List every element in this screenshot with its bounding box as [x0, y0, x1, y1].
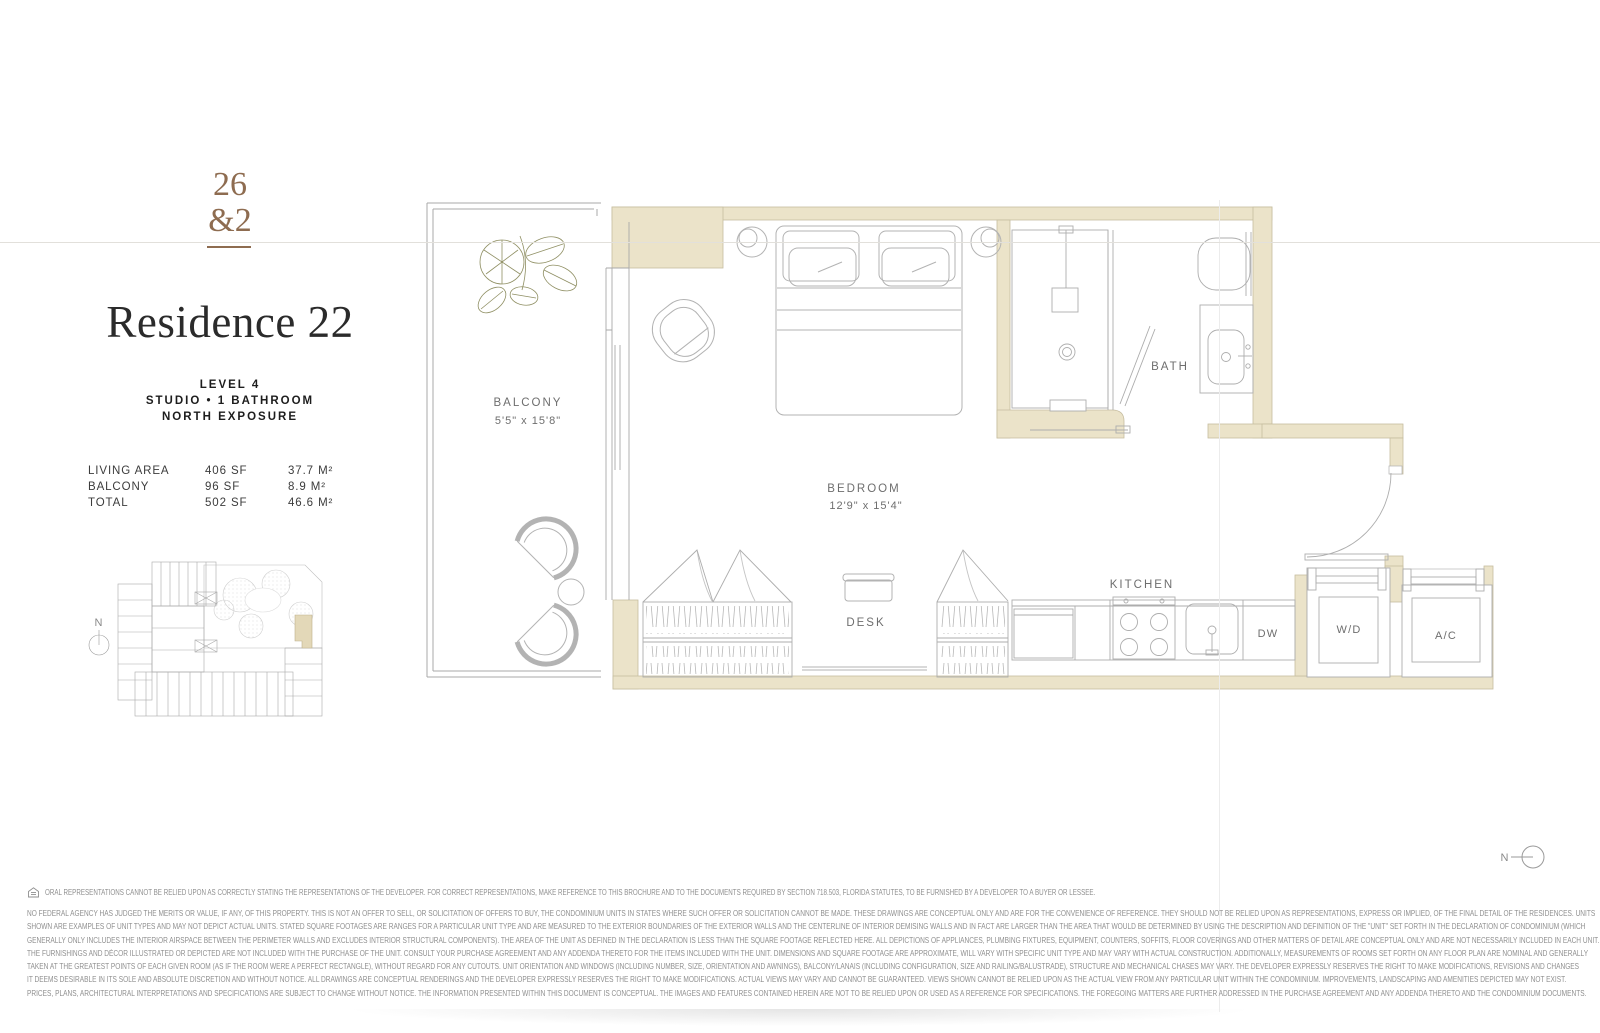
- area-m2: 46.6 M²: [288, 497, 333, 509]
- area-table-row: LIVING AREA406 SF37.7 M²: [88, 465, 348, 481]
- shower: [1012, 226, 1113, 411]
- legal-disclaimer-line: GENERALLY ONLY INCLUDES THE INTERIOR AIR…: [27, 934, 1306, 947]
- keyplan-north-compass: N: [89, 617, 109, 655]
- keyplan: N: [89, 562, 322, 716]
- bath-label: BATH: [1151, 361, 1189, 373]
- bedroom-label: BEDROOM: [827, 483, 900, 495]
- washer-dryer-label: W/D: [1337, 624, 1362, 636]
- floor-plan: BALCONY 5'5" x 15'8" BEDROOM 12'9" x 15'…: [427, 203, 1544, 868]
- page-edge-shadow: [230, 1009, 1370, 1033]
- bath-vanity: [1200, 305, 1253, 393]
- area-table-row: TOTAL502 SF46.6 M²: [88, 497, 348, 513]
- door-jamb-notch: [1389, 466, 1402, 474]
- balcony-glass-wall: [606, 222, 629, 600]
- keyplan-building: [118, 562, 322, 716]
- exposure-label: NORTH EXPOSURE: [95, 411, 365, 423]
- keyplan-unit-highlight: [295, 615, 312, 648]
- wardrobe-left: [643, 550, 792, 677]
- area-label: LIVING AREA: [88, 465, 169, 477]
- oral-representations-disclaimer: ORAL REPRESENTATIONS CANNOT BE RELIED UP…: [27, 886, 1392, 898]
- plan-north-compass: N: [1501, 846, 1544, 868]
- kitchen-sink: [1186, 604, 1238, 655]
- page-title: Residence 22: [40, 296, 420, 348]
- balcony-chair-2: [514, 602, 588, 676]
- balcony-chair-1: [514, 506, 588, 580]
- area-m2: 8.9 M²: [288, 481, 326, 493]
- brand-logo: 26 &2: [180, 167, 280, 239]
- air-conditioner-label: A/C: [1435, 630, 1457, 642]
- bed: [776, 226, 962, 415]
- level-label: LEVEL 4: [95, 379, 365, 391]
- oral-representations-text: ORAL REPRESENTATIONS CANNOT BE RELIED UP…: [45, 888, 1095, 897]
- desk-label: DESK: [846, 617, 885, 629]
- equal-housing-icon: [27, 887, 40, 898]
- dishwasher-label: DW: [1258, 628, 1279, 640]
- unit-type-label: STUDIO • 1 BATHROOM: [95, 395, 365, 407]
- bedroom-dims: 12'9" x 15'4": [829, 500, 902, 512]
- balcony-table: [558, 579, 584, 605]
- brand-logo-line1: 26: [180, 167, 280, 203]
- area-m2: 37.7 M²: [288, 465, 333, 477]
- legal-disclaimer-line: NO FEDERAL AGENCY HAS JUDGED THE MERITS …: [27, 907, 1306, 920]
- balcony-railing: [427, 203, 601, 677]
- area-table-row: BALCONY96 SF8.9 M²: [88, 481, 348, 497]
- floor-plan-canvas: N: [0, 0, 1600, 1033]
- brand-logo-underline: [207, 246, 251, 248]
- bath-door: [1120, 326, 1155, 406]
- balcony-label: BALCONY: [494, 397, 563, 409]
- balcony-dims: 5'5" x 15'8": [495, 415, 561, 427]
- legal-disclaimer-line: SHOWN ARE EXAMPLES OF UNIT TYPES AND MAY…: [27, 920, 1306, 933]
- area-table: LIVING AREA406 SF37.7 M²BALCONY96 SF8.9 …: [88, 465, 348, 513]
- wardrobe-right: [937, 550, 1008, 677]
- page-rule: [0, 242, 1600, 243]
- legal-disclaimer-line: THE FURNISHINGS AND DÉCOR ILLUSTRATED OR…: [27, 947, 1306, 960]
- washer-dryer-closet: [1307, 568, 1390, 677]
- keyplan-north-label: N: [95, 617, 104, 629]
- air-conditioner-closet: [1402, 569, 1492, 677]
- entry-door: [1305, 473, 1391, 560]
- legal-disclaimer-line: PRICES, PLANS, ARCHITECTURAL INTERPRETAT…: [27, 987, 1306, 1000]
- brochure-page: N: [0, 0, 1600, 1033]
- area-sf: 96 SF: [205, 481, 240, 493]
- plan-north-label: N: [1501, 852, 1510, 864]
- armchair: [643, 290, 724, 371]
- balcony-plant: [473, 232, 581, 318]
- area-sf: 406 SF: [205, 465, 247, 477]
- legal-disclaimer-line: IT DEEMS DESIRABLE IN ITS SOLE AND ABSOL…: [27, 973, 1306, 986]
- kitchen-label: KITCHEN: [1110, 579, 1174, 591]
- legal-disclaimer-line: TAKEN AT THE GREATEST POINTS OF EACH GIV…: [27, 960, 1306, 973]
- kitchen-counter: [1012, 600, 1295, 660]
- legal-disclaimer: NO FEDERAL AGENCY HAS JUDGED THE MERITS …: [27, 907, 1587, 1000]
- area-label: BALCONY: [88, 481, 149, 493]
- area-label: TOTAL: [88, 497, 129, 509]
- brand-logo-line2: &2: [180, 203, 280, 239]
- area-sf: 502 SF: [205, 497, 247, 509]
